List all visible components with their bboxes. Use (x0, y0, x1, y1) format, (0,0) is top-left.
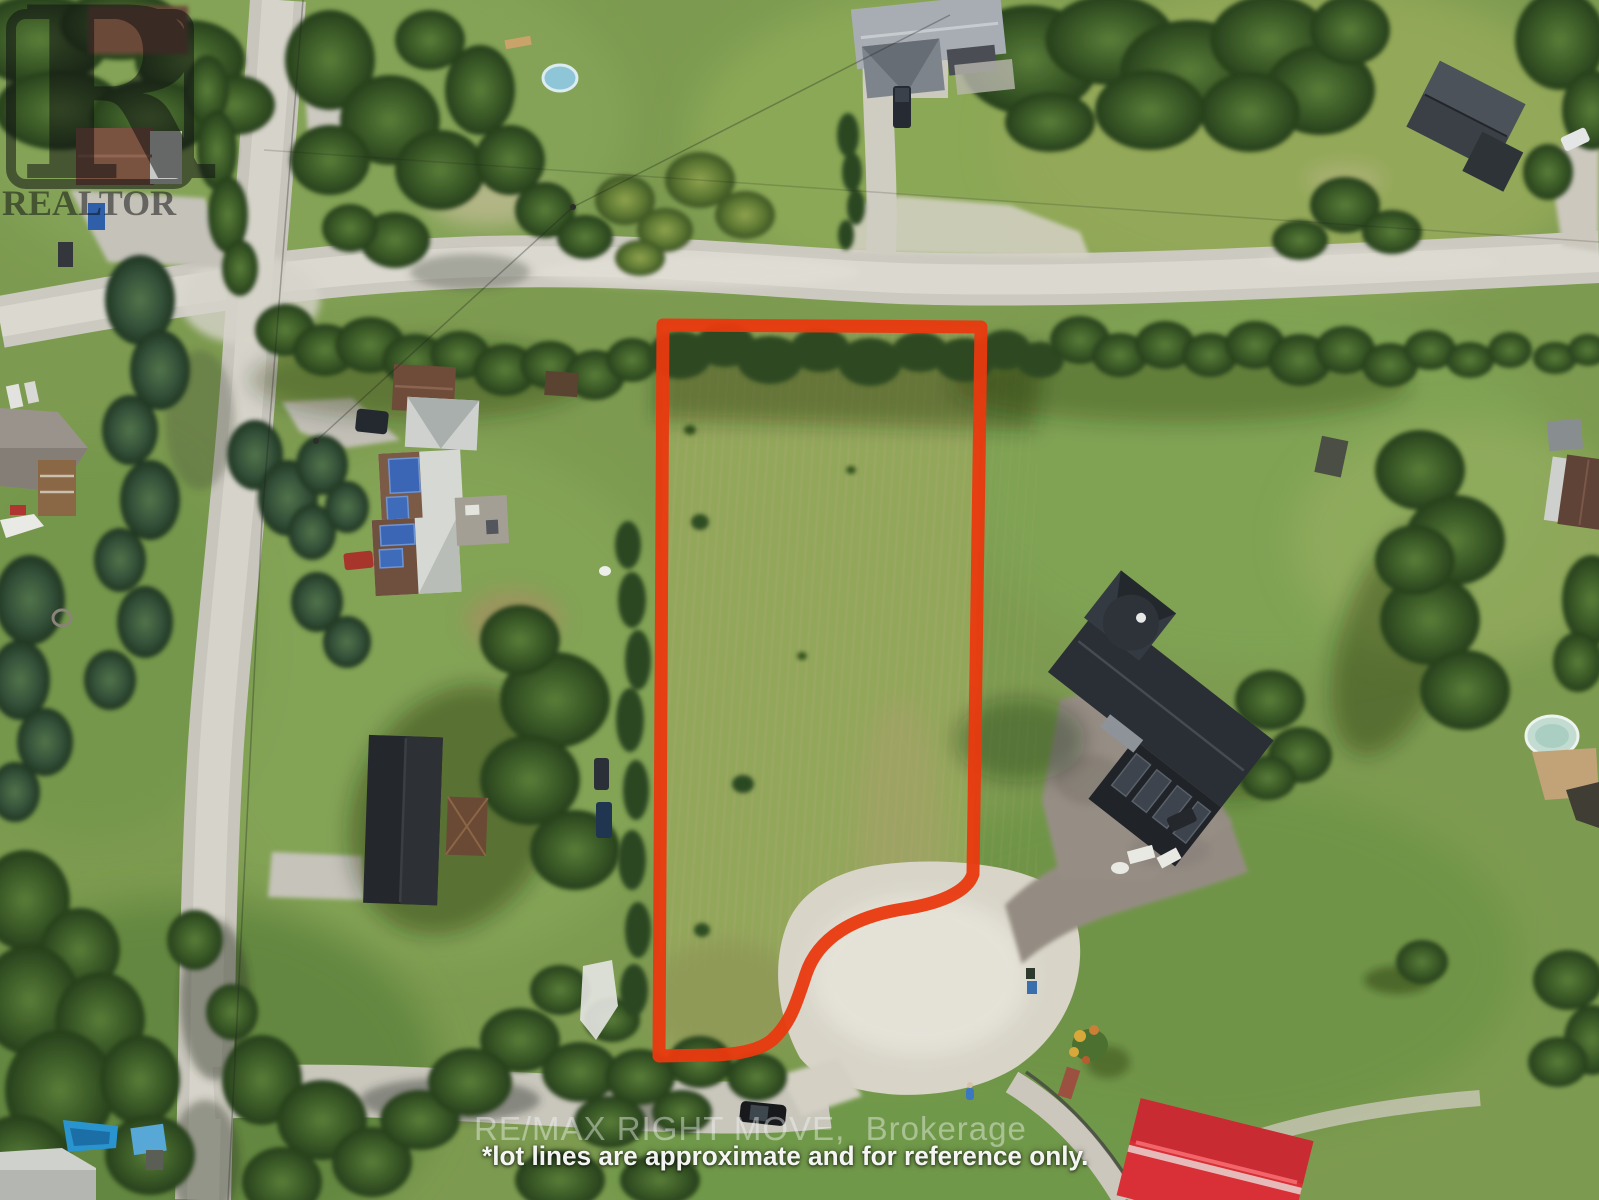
suv (355, 408, 389, 434)
trash-bin (1026, 968, 1035, 979)
pool-top-left (543, 65, 577, 91)
red-car (343, 550, 374, 570)
shed-brown (544, 371, 579, 397)
parked-car-2 (596, 802, 612, 838)
aerial-scene (0, 0, 1599, 1200)
dark-car (58, 242, 73, 267)
lot-lines-disclaimer: *lot lines are approximate and for refer… (482, 1141, 1088, 1172)
gazebo-gray (1547, 419, 1583, 452)
white-dog (599, 566, 611, 576)
aerial-listing-photo: R REALTOR RE/MAX RIGHT MOVE, Brokerage *… (0, 0, 1599, 1200)
recycle-bin (1027, 981, 1037, 994)
person-walking (966, 1082, 974, 1100)
table (146, 1150, 163, 1170)
parked-car-1 (594, 758, 609, 790)
blue-truck (88, 203, 105, 230)
house-far-right (1544, 453, 1599, 531)
